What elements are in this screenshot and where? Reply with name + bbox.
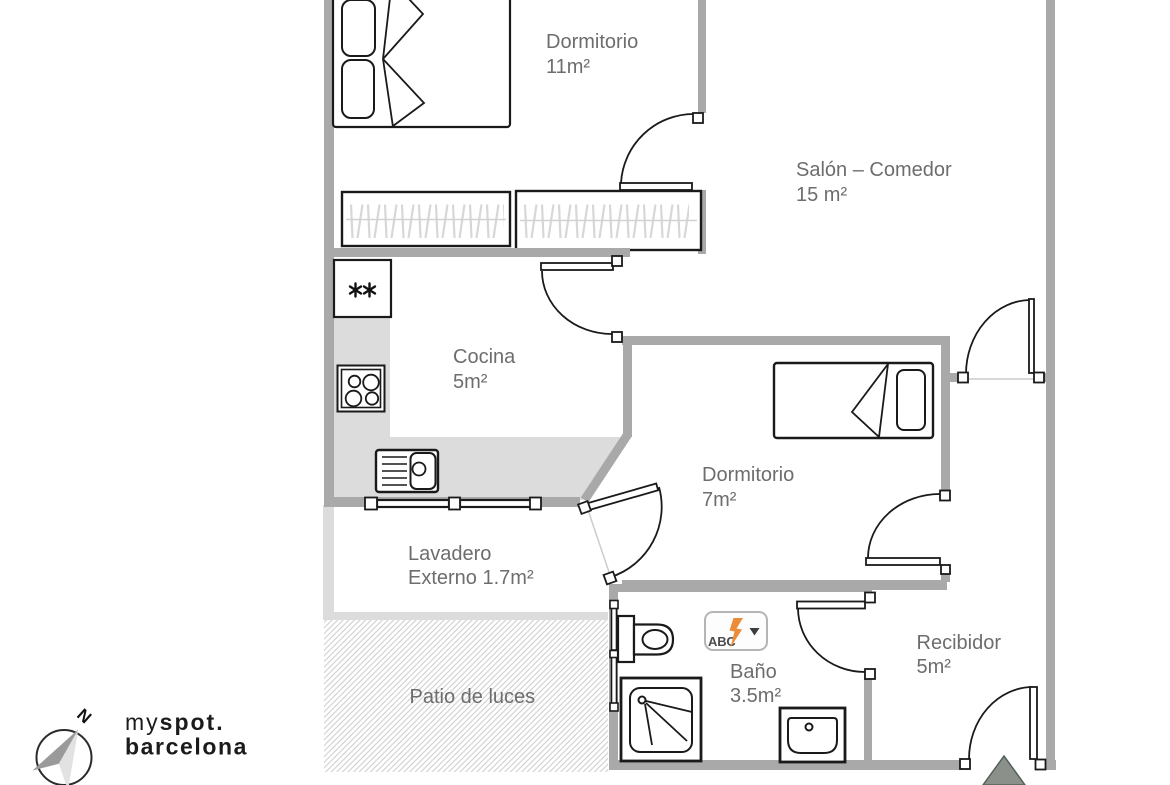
svg-text:Patio de luces: Patio de luces [410, 686, 536, 708]
svg-text:barcelona: barcelona [125, 734, 248, 760]
svg-text:myspot.: myspot. [125, 709, 225, 735]
